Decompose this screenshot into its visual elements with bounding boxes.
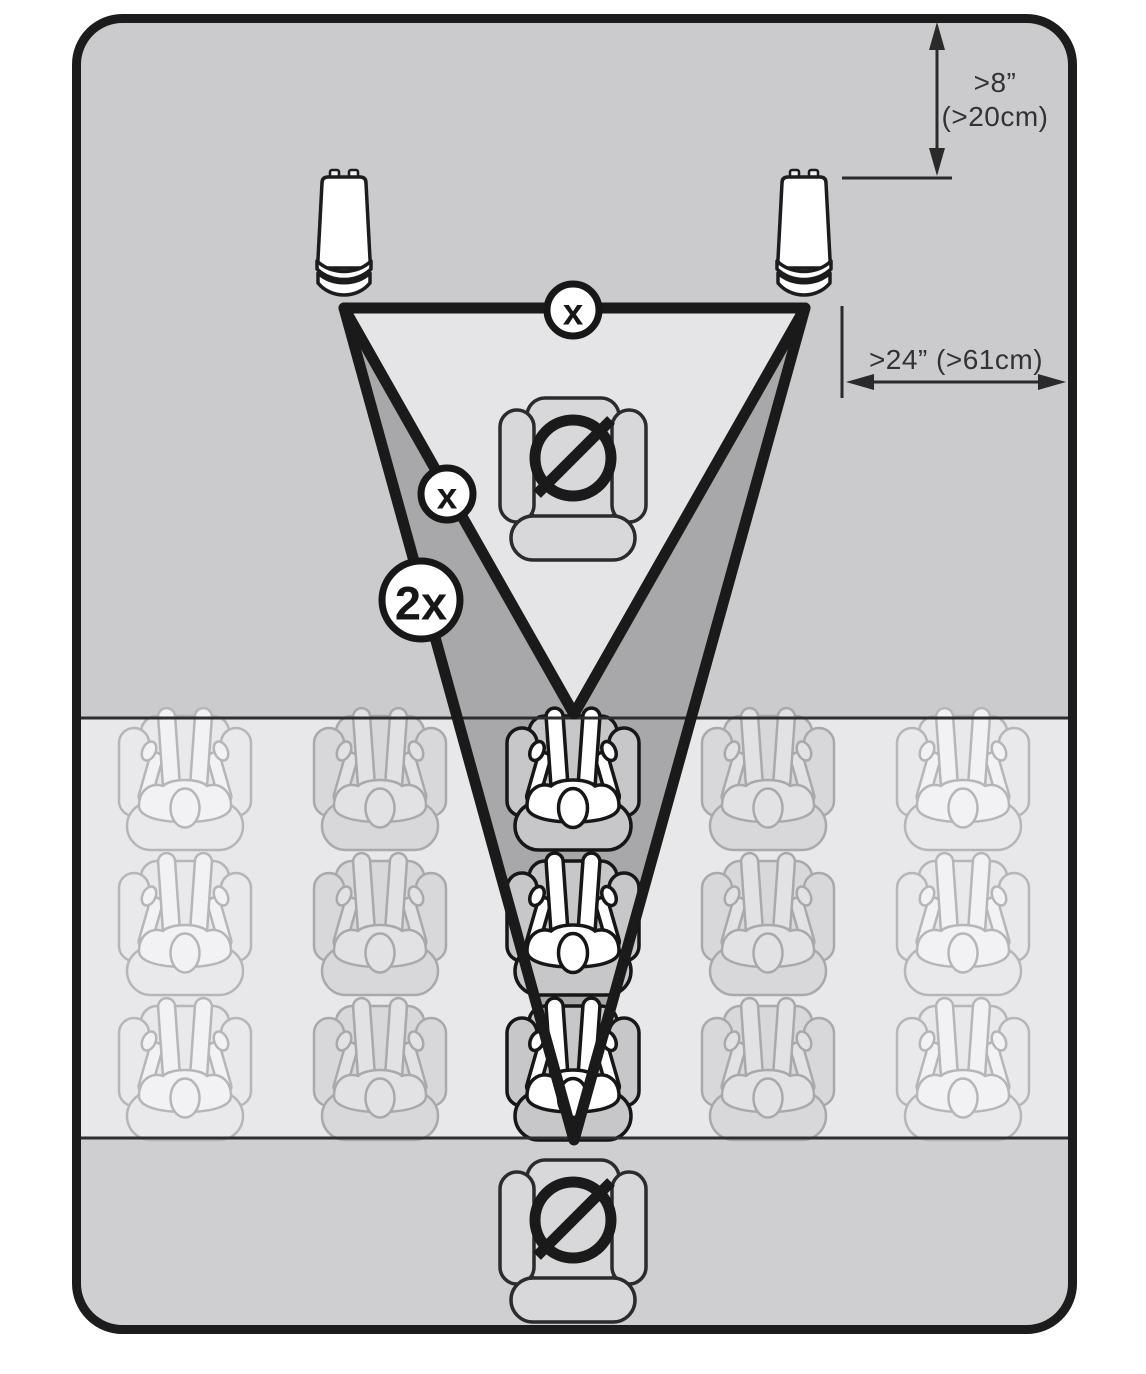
prohibited-seat-front [500, 398, 646, 560]
seat-r1-c1 [119, 708, 251, 850]
seat-r1-c3-highlighted [507, 708, 639, 850]
speaker-spacing-label: x [563, 292, 584, 333]
rear-listening-distance-label: 2x [395, 577, 447, 630]
listening-distance-label: x [437, 476, 458, 517]
front-wall-distance-value: >8” [974, 67, 1017, 98]
listening-distance-badge: x [421, 468, 473, 520]
seat-r1-c4 [702, 708, 834, 850]
seat-r2-c4 [702, 853, 834, 995]
speaker-placement-diagram: x x 2x >8” (>20cm) >24” (>61cm) [0, 0, 1146, 1374]
left-speaker [317, 170, 371, 295]
seat-r3-c2 [314, 998, 446, 1140]
seat-r1-c2 [314, 708, 446, 850]
front-wall-distance-metric: (>20cm) [942, 101, 1049, 132]
speaker-spacing-badge: x [547, 284, 599, 336]
seat-r3-c1 [119, 998, 251, 1140]
seat-r1-c5 [897, 708, 1029, 850]
seat-r2-c1 [119, 853, 251, 995]
seat-r2-c5 [897, 853, 1029, 995]
side-wall-distance-value: >24” (>61cm) [869, 344, 1043, 375]
right-speaker [777, 170, 831, 295]
seat-r2-c2 [314, 853, 446, 995]
diagram-canvas: x x 2x >8” (>20cm) >24” (>61cm) [0, 0, 1146, 1374]
prohibited-seat-rear [500, 1160, 646, 1322]
seat-r3-c5 [897, 998, 1029, 1140]
rear-listening-distance-badge: 2x [382, 561, 460, 639]
seat-r3-c4 [702, 998, 834, 1140]
